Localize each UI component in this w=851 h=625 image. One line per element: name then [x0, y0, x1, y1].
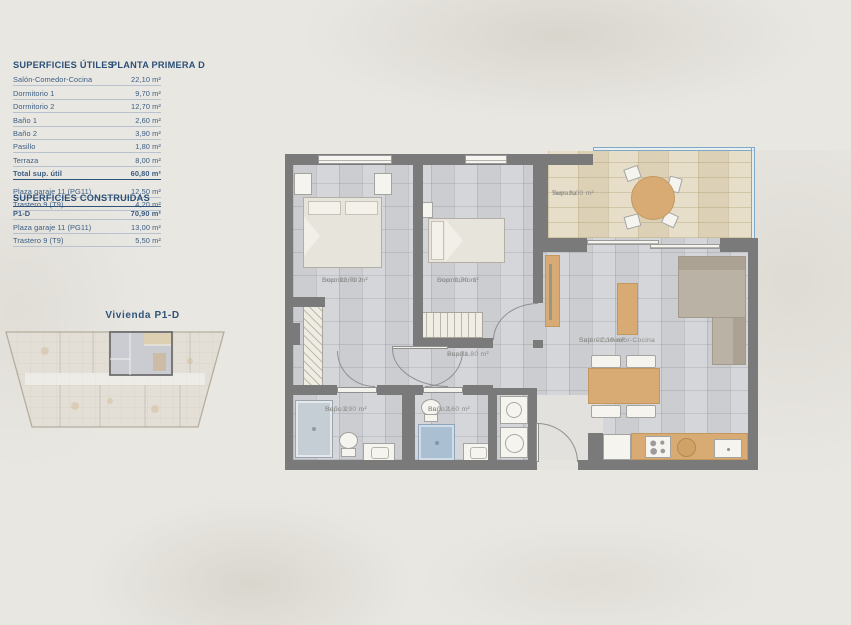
drain [435, 441, 439, 445]
single-bed [428, 218, 505, 263]
wall [720, 238, 758, 252]
sofa-back [679, 257, 745, 270]
washing-machine [500, 396, 528, 424]
wall [377, 385, 423, 395]
wardrobe [303, 303, 323, 388]
table-row: Salón-Comedor-Cocina22,10 m² [13, 73, 161, 86]
dryer-drum [505, 434, 524, 453]
dryer [500, 427, 528, 458]
total-row: Total sup. útil60,80 m² [13, 167, 161, 180]
wall [413, 165, 423, 348]
wall [533, 238, 587, 252]
drain [312, 427, 316, 431]
terrace-glass-railing-right [751, 147, 755, 239]
wardrobe [418, 312, 483, 338]
kitchen-island [617, 283, 638, 335]
superficies-utiles-table: SUPERFICIES ÚTILES PLANTA PRIMERA D Saló… [13, 60, 161, 211]
floor-plan: Dormitorio 2 Sup: 12,70 m² Dormitorio 1 … [285, 147, 758, 470]
terrace-glass-railing-top [593, 147, 755, 151]
dining-chair [591, 405, 621, 418]
wall [533, 340, 543, 348]
nightstand [294, 173, 312, 195]
building-overview [5, 331, 225, 428]
drain [727, 448, 730, 451]
pillow [431, 221, 444, 260]
table-row: Baño 12,60 m² [13, 113, 161, 126]
sofa-chaise [712, 318, 746, 365]
highlighted-unit [110, 332, 172, 375]
dining-chair [626, 405, 656, 418]
sofa-back [733, 318, 745, 364]
blanket-fold [304, 216, 320, 256]
construidas-rows: P1-D70,90 m² Plaza garaje 11 (PG11)13,00… [13, 206, 161, 247]
door-leaf [337, 387, 377, 393]
round-basin [677, 438, 696, 457]
pillow [345, 201, 378, 215]
table-row: P1-D70,90 m² [13, 207, 161, 220]
tv-unit [545, 255, 560, 327]
blanket-fold [445, 219, 463, 262]
table-row: Dormitorio 19,70 m² [13, 86, 161, 99]
window [465, 155, 507, 164]
table-header: SUPERFICIES CONSTRUIDAS [13, 193, 161, 206]
utiles-title: SUPERFICIES ÚTILES [13, 60, 114, 70]
table-row: Terraza8,00 m² [13, 153, 161, 166]
utiles-rows: Salón-Comedor-Cocina22,10 m² Dormitorio … [13, 73, 161, 180]
paper-stain [420, 520, 760, 625]
wall [463, 385, 493, 395]
terrace-round-table [631, 176, 675, 220]
wall [293, 385, 337, 395]
superficies-construidas-table: SUPERFICIES CONSTRUIDAS P1-D70,90 m² Pla… [13, 193, 161, 247]
wall [285, 154, 293, 470]
wall [488, 395, 497, 462]
table-header: SUPERFICIES ÚTILES PLANTA PRIMERA D [13, 60, 161, 73]
table-row: Trastero 9 (T9)5,50 m² [13, 234, 161, 247]
cooktop [645, 436, 671, 458]
washer-drum [506, 402, 522, 418]
building-overview-drawing [5, 331, 225, 428]
kitchen-sink [714, 439, 742, 458]
paper-stain [300, 0, 820, 120]
wall [748, 238, 758, 470]
nightstand [374, 173, 392, 195]
double-bed [303, 197, 382, 268]
wall [533, 165, 548, 238]
sofa [678, 256, 746, 318]
fridge [603, 434, 631, 460]
dining-chair [626, 355, 656, 368]
paper-stain [90, 500, 410, 625]
planta-label: PLANTA PRIMERA D [111, 60, 205, 70]
dining-table [588, 368, 660, 404]
wall [588, 433, 603, 460]
table-row: Pasillo1,80 m² [13, 140, 161, 153]
brochure-page: SUPERFICIES ÚTILES PLANTA PRIMERA D Saló… [0, 0, 851, 625]
dining-chair [591, 355, 621, 368]
pillow [308, 201, 341, 215]
wall [533, 252, 543, 303]
sliding-door-panel [587, 240, 659, 245]
toilet-tank [424, 414, 438, 422]
wall [291, 297, 325, 307]
table-row: Plaza garaje 11 (PG11)13,00 m² [13, 220, 161, 233]
construidas-title: SUPERFICIES CONSTRUIDAS [13, 193, 150, 203]
toilet [339, 432, 358, 449]
basin [371, 447, 389, 459]
wall [285, 323, 300, 345]
tv [549, 264, 552, 320]
shower [418, 424, 455, 461]
toilet-tank [341, 448, 356, 457]
wall [402, 395, 415, 462]
table-row: Dormitorio 212,70 m² [13, 100, 161, 113]
wall [285, 460, 758, 470]
table-row: Baño 23,90 m² [13, 127, 161, 140]
unit-title: Vivienda P1-D [60, 310, 225, 321]
basin [470, 447, 487, 459]
sliding-door-panel [650, 244, 720, 249]
window [318, 155, 392, 164]
door-leaf [423, 387, 463, 393]
